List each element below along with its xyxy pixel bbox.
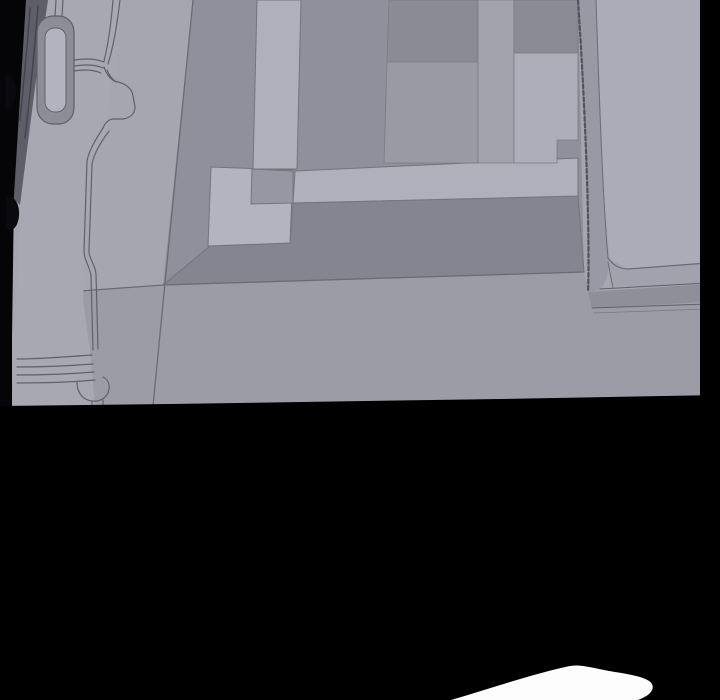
comic-panel	[0, 0, 720, 700]
rug-band-vertical	[253, 0, 301, 169]
tile-dark-left	[387, 0, 478, 62]
scene-root	[0, 0, 720, 700]
bed-platform-top	[596, 0, 707, 288]
panel-border-right	[700, 0, 720, 398]
tile-dark-right	[514, 0, 578, 53]
rug-overlap-square	[251, 169, 293, 204]
door-handle-recess-inner	[45, 28, 66, 112]
panel-illustration	[0, 0, 720, 700]
gutter-bottom	[0, 395, 720, 700]
tile-light-middle	[478, 0, 514, 163]
tile-medium-left	[384, 62, 478, 163]
